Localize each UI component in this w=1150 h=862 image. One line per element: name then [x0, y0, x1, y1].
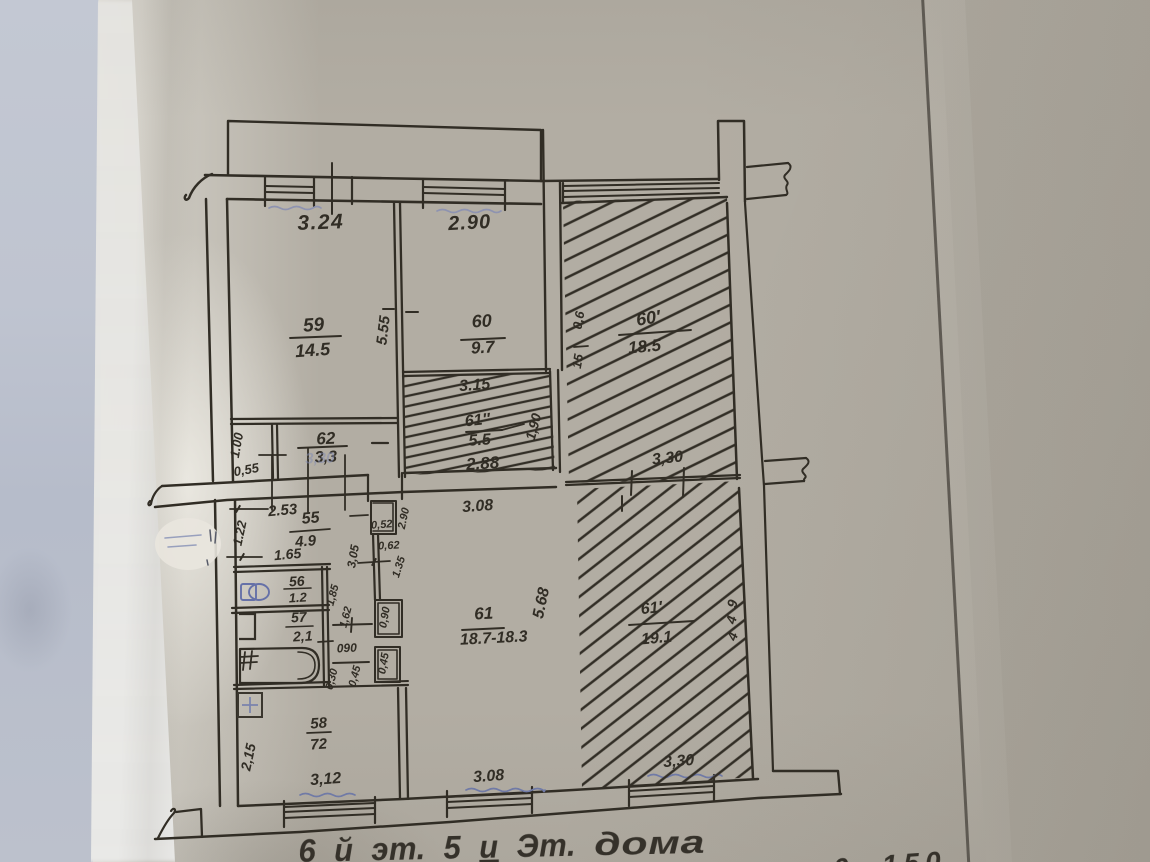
- svg-text:0,45: 0,45: [347, 663, 364, 688]
- svg-text:72: 72: [310, 735, 328, 753]
- svg-text:14.5: 14.5: [294, 339, 331, 361]
- svg-text:58: 58: [310, 714, 328, 732]
- svg-text:3.08: 3.08: [473, 767, 505, 786]
- svg-text:61: 61: [474, 604, 494, 624]
- svg-text:61″: 61″: [464, 411, 492, 431]
- svg-text:0,55: 0,55: [232, 460, 260, 479]
- svg-text:2.90: 2.90: [396, 506, 413, 531]
- svg-text:2.53: 2.53: [266, 501, 298, 521]
- svg-text:3.08: 3.08: [462, 497, 494, 516]
- svg-text:0,62: 0,62: [378, 539, 400, 552]
- svg-text:1.00: 1.00: [227, 431, 246, 459]
- svg-text:0,52: 0,52: [371, 518, 393, 531]
- svg-text:62: 62: [316, 429, 336, 449]
- svg-text:1.22: 1.22: [230, 518, 250, 547]
- svg-text:3,30: 3,30: [663, 752, 695, 771]
- svg-text:5.5: 5.5: [468, 431, 492, 450]
- svg-text:5.68: 5.68: [530, 586, 553, 620]
- svg-text:3.24: 3.24: [297, 210, 345, 235]
- svg-text:18.7-18.3: 18.7-18.3: [460, 628, 529, 649]
- svg-text:3,30: 3,30: [305, 449, 335, 467]
- svg-text:3,30: 3,30: [651, 448, 684, 468]
- svg-text:0,45: 0,45: [376, 651, 392, 675]
- svg-text:090: 090: [336, 640, 357, 655]
- svg-text:60′: 60′: [635, 306, 663, 329]
- svg-text:56: 56: [289, 573, 306, 590]
- svg-text:2.88: 2.88: [464, 453, 500, 474]
- svg-text:19.1: 19.1: [640, 629, 673, 649]
- svg-text:3,05: 3,05: [344, 543, 362, 569]
- svg-text:2,1: 2,1: [292, 627, 313, 644]
- svg-text:18.5: 18.5: [627, 336, 662, 358]
- svg-text:5.55: 5.55: [373, 314, 394, 346]
- svg-text:3,12: 3,12: [310, 770, 342, 789]
- svg-text:2,15: 2,15: [237, 742, 259, 773]
- svg-text:9.7: 9.7: [470, 337, 496, 357]
- svg-text:0,90: 0,90: [377, 605, 393, 629]
- svg-text:55: 55: [301, 509, 321, 528]
- svg-text:2.90: 2.90: [447, 211, 492, 235]
- svg-text:59: 59: [302, 314, 325, 336]
- svg-text:57: 57: [291, 609, 309, 626]
- svg-text:61′: 61′: [640, 599, 664, 618]
- svg-text:60: 60: [471, 310, 492, 331]
- svg-text:1.65: 1.65: [273, 545, 302, 563]
- svg-text:1.35: 1.35: [390, 554, 408, 579]
- svg-text:1.2: 1.2: [288, 590, 308, 606]
- svg-text:3.15: 3.15: [459, 376, 492, 395]
